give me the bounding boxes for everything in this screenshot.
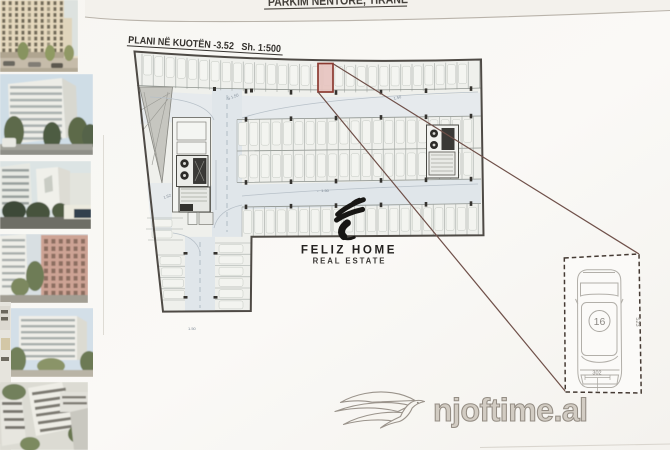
svg-text:FELIZ HOME: FELIZ HOME bbox=[301, 244, 397, 257]
svg-text:1.50: 1.50 bbox=[188, 326, 197, 331]
svg-text:REAL ESTATE: REAL ESTATE bbox=[313, 257, 387, 266]
svg-text:16: 16 bbox=[594, 316, 606, 328]
svg-text:njoftime.al: njoftime.al bbox=[433, 392, 588, 428]
svg-text:302: 302 bbox=[592, 371, 601, 377]
svg-text:523: 523 bbox=[634, 317, 640, 326]
svg-text:← 1.50: ← 1.50 bbox=[316, 188, 330, 193]
